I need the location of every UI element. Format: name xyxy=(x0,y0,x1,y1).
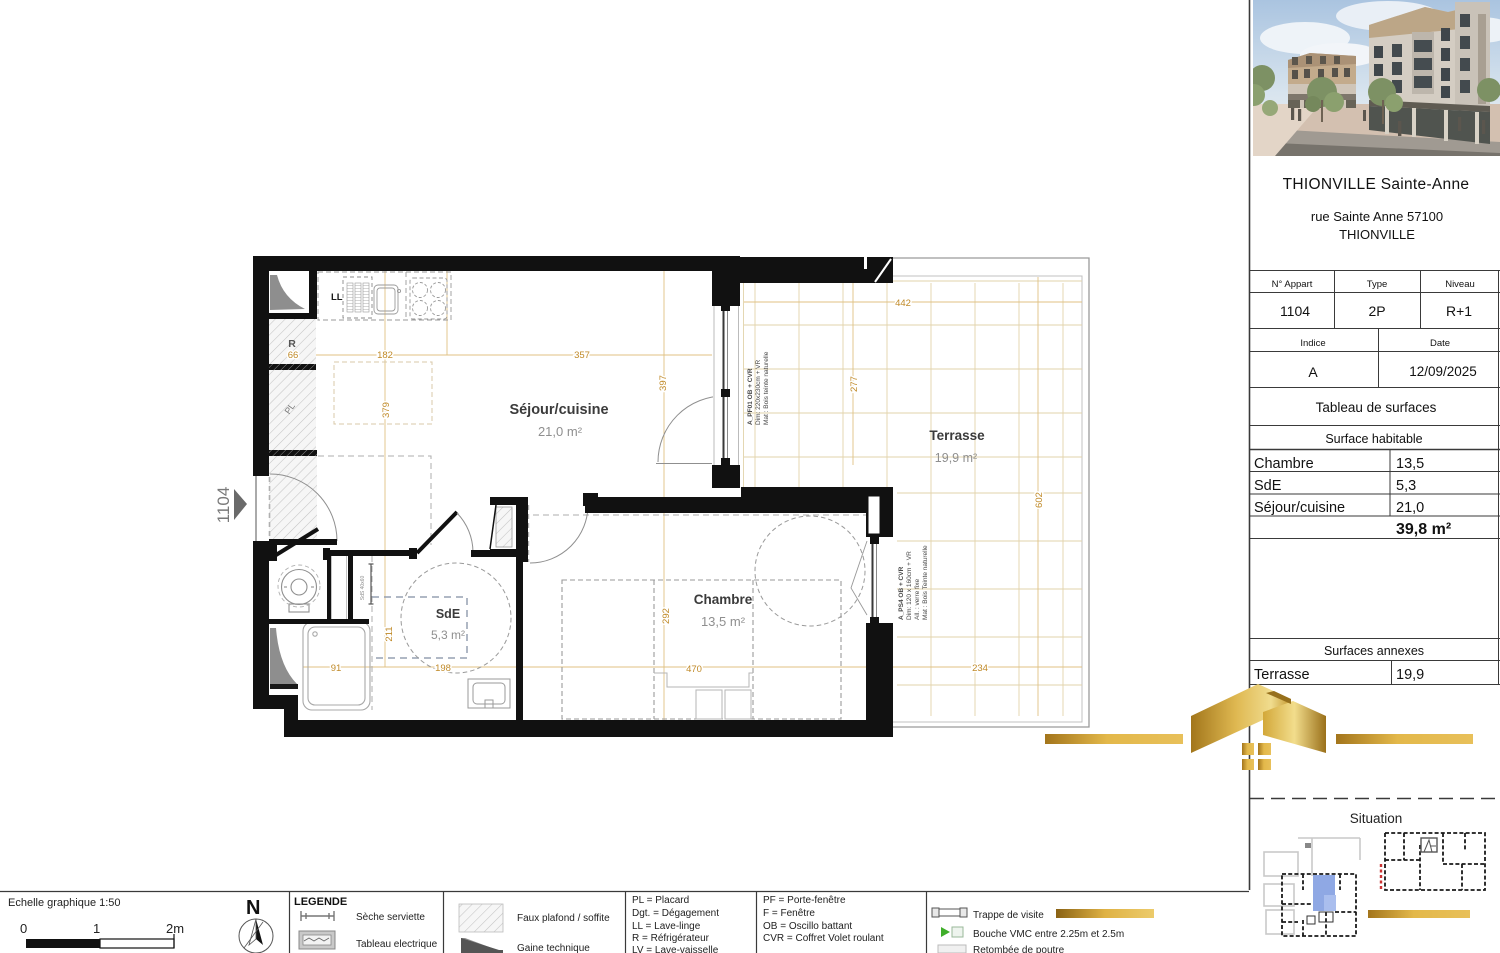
svg-text:Terrasse: Terrasse xyxy=(929,428,985,443)
svg-text:Terrasse: Terrasse xyxy=(1254,667,1310,683)
svg-text:1104: 1104 xyxy=(1280,303,1310,319)
svg-text:SdE: SdE xyxy=(436,607,460,621)
svg-text:SdE: SdE xyxy=(1254,478,1282,494)
svg-text:PF = Porte-fenêtre: PF = Porte-fenêtre xyxy=(763,895,846,906)
svg-text:0: 0 xyxy=(20,921,27,936)
svg-text:Sèche serviette: Sèche serviette xyxy=(356,912,425,923)
svg-text:Gaine technique: Gaine technique xyxy=(517,943,590,953)
svg-text:OB = Oscillo battant: OB = Oscillo battant xyxy=(763,921,852,932)
svg-text:357: 357 xyxy=(574,350,590,361)
svg-text:LL: LL xyxy=(331,292,343,303)
svg-text:Mat : Bois Teinte naturelle: Mat : Bois Teinte naturelle xyxy=(922,545,929,620)
svg-text:Dim: 220x230cm + VR: Dim: 220x230cm + VR xyxy=(755,359,762,425)
svg-text:THIONVILLE Sainte-Anne: THIONVILLE Sainte-Anne xyxy=(1283,176,1470,193)
svg-text:Chambre: Chambre xyxy=(694,592,753,607)
svg-text:182: 182 xyxy=(377,350,393,361)
svg-text:234: 234 xyxy=(972,663,988,674)
svg-text:R+1: R+1 xyxy=(1446,303,1472,319)
svg-text:Surface habitable: Surface habitable xyxy=(1325,432,1422,446)
svg-text:1: 1 xyxy=(93,921,100,936)
svg-text:Dim: 120 x 160cm + VR: Dim: 120 x 160cm + VR xyxy=(906,551,913,620)
svg-text:91: 91 xyxy=(331,663,342,674)
svg-text:Tableau de surfaces: Tableau de surfaces xyxy=(1316,400,1437,415)
svg-text:66: 66 xyxy=(288,350,299,361)
svg-text:LV = Lave-vaisselle: LV = Lave-vaisselle xyxy=(632,945,719,953)
svg-text:379: 379 xyxy=(381,402,392,418)
svg-text:Mat : Bois teinte naturelle: Mat : Bois teinte naturelle xyxy=(763,351,770,425)
svg-text:Echelle graphique 1:50: Echelle graphique 1:50 xyxy=(8,897,121,909)
svg-text:N° Appart: N° Appart xyxy=(1272,279,1313,290)
svg-text:Situation: Situation xyxy=(1350,811,1403,826)
svg-text:1104: 1104 xyxy=(214,487,233,524)
svg-text:PL = Placard: PL = Placard xyxy=(632,895,689,906)
svg-text:Type: Type xyxy=(1367,279,1388,290)
svg-text:CVR = Coffret Volet roulant: CVR = Coffret Volet roulant xyxy=(763,933,884,944)
svg-text:rue Sainte Anne 57100: rue Sainte Anne 57100 xyxy=(1311,209,1443,224)
svg-text:Séjour/cuisine: Séjour/cuisine xyxy=(509,402,608,418)
svg-text:19,9 m²: 19,9 m² xyxy=(935,451,977,465)
svg-text:19,9: 19,9 xyxy=(1396,667,1424,683)
svg-text:397: 397 xyxy=(658,375,669,391)
svg-text:Surfaces annexes: Surfaces annexes xyxy=(1324,644,1424,658)
svg-text:Bouche VMC entre 2.25m et 2.5m: Bouche VMC entre 2.25m et 2.5m xyxy=(973,929,1124,940)
svg-text:13,5: 13,5 xyxy=(1396,456,1424,472)
svg-text:All. : verre fixe: All. : verre fixe xyxy=(914,578,921,620)
svg-text:N: N xyxy=(246,897,260,919)
svg-text:Date: Date xyxy=(1430,338,1450,349)
svg-text:198: 198 xyxy=(435,663,451,674)
svg-text:SdS 40x60: SdS 40x60 xyxy=(360,576,366,601)
svg-text:13,5 m²: 13,5 m² xyxy=(701,614,746,629)
svg-text:Dgt. = Dégagement: Dgt. = Dégagement xyxy=(632,908,719,919)
svg-text:12/09/2025: 12/09/2025 xyxy=(1409,364,1477,379)
svg-text:R = Réfrigérateur: R = Réfrigérateur xyxy=(632,933,710,944)
svg-text:442: 442 xyxy=(895,298,911,309)
svg-text:Faux plafond / soffite: Faux plafond / soffite xyxy=(517,913,610,924)
svg-text:A_PF01 OB + CVR: A_PF01 OB + CVR xyxy=(747,368,754,425)
svg-text:277: 277 xyxy=(849,376,860,392)
svg-text:Trappe de visite: Trappe de visite xyxy=(973,910,1044,921)
svg-text:Séjour/cuisine: Séjour/cuisine xyxy=(1254,500,1345,516)
svg-text:LEGENDE: LEGENDE xyxy=(294,896,347,908)
svg-text:R: R xyxy=(288,338,296,350)
svg-text:602: 602 xyxy=(1034,492,1045,508)
svg-text:5,3: 5,3 xyxy=(1396,478,1416,494)
svg-text:LL = Lave-linge: LL = Lave-linge xyxy=(632,921,701,932)
svg-text:21,0: 21,0 xyxy=(1396,500,1424,516)
svg-text:Indice: Indice xyxy=(1300,338,1325,349)
svg-text:39,8 m²: 39,8 m² xyxy=(1396,521,1451,538)
svg-text:21,0 m²: 21,0 m² xyxy=(538,424,583,439)
svg-text:2P: 2P xyxy=(1368,303,1385,319)
svg-text:292: 292 xyxy=(661,608,672,624)
svg-text:Niveau: Niveau xyxy=(1445,279,1475,290)
svg-text:Retombée de poutre: Retombée de poutre xyxy=(973,945,1065,953)
svg-text:5,3 m²: 5,3 m² xyxy=(431,628,465,642)
svg-text:A_PS4 OB + CVR: A_PS4 OB + CVR xyxy=(898,566,905,620)
svg-text:211: 211 xyxy=(384,626,395,641)
svg-text:2m: 2m xyxy=(166,921,184,936)
svg-text:THIONVILLE: THIONVILLE xyxy=(1339,227,1415,242)
svg-text:Chambre: Chambre xyxy=(1254,456,1314,472)
svg-text:F = Fenêtre: F = Fenêtre xyxy=(763,908,815,919)
svg-text:Tableau electrique: Tableau electrique xyxy=(356,939,438,950)
svg-text:470: 470 xyxy=(686,664,702,675)
svg-text:A: A xyxy=(1308,364,1318,380)
